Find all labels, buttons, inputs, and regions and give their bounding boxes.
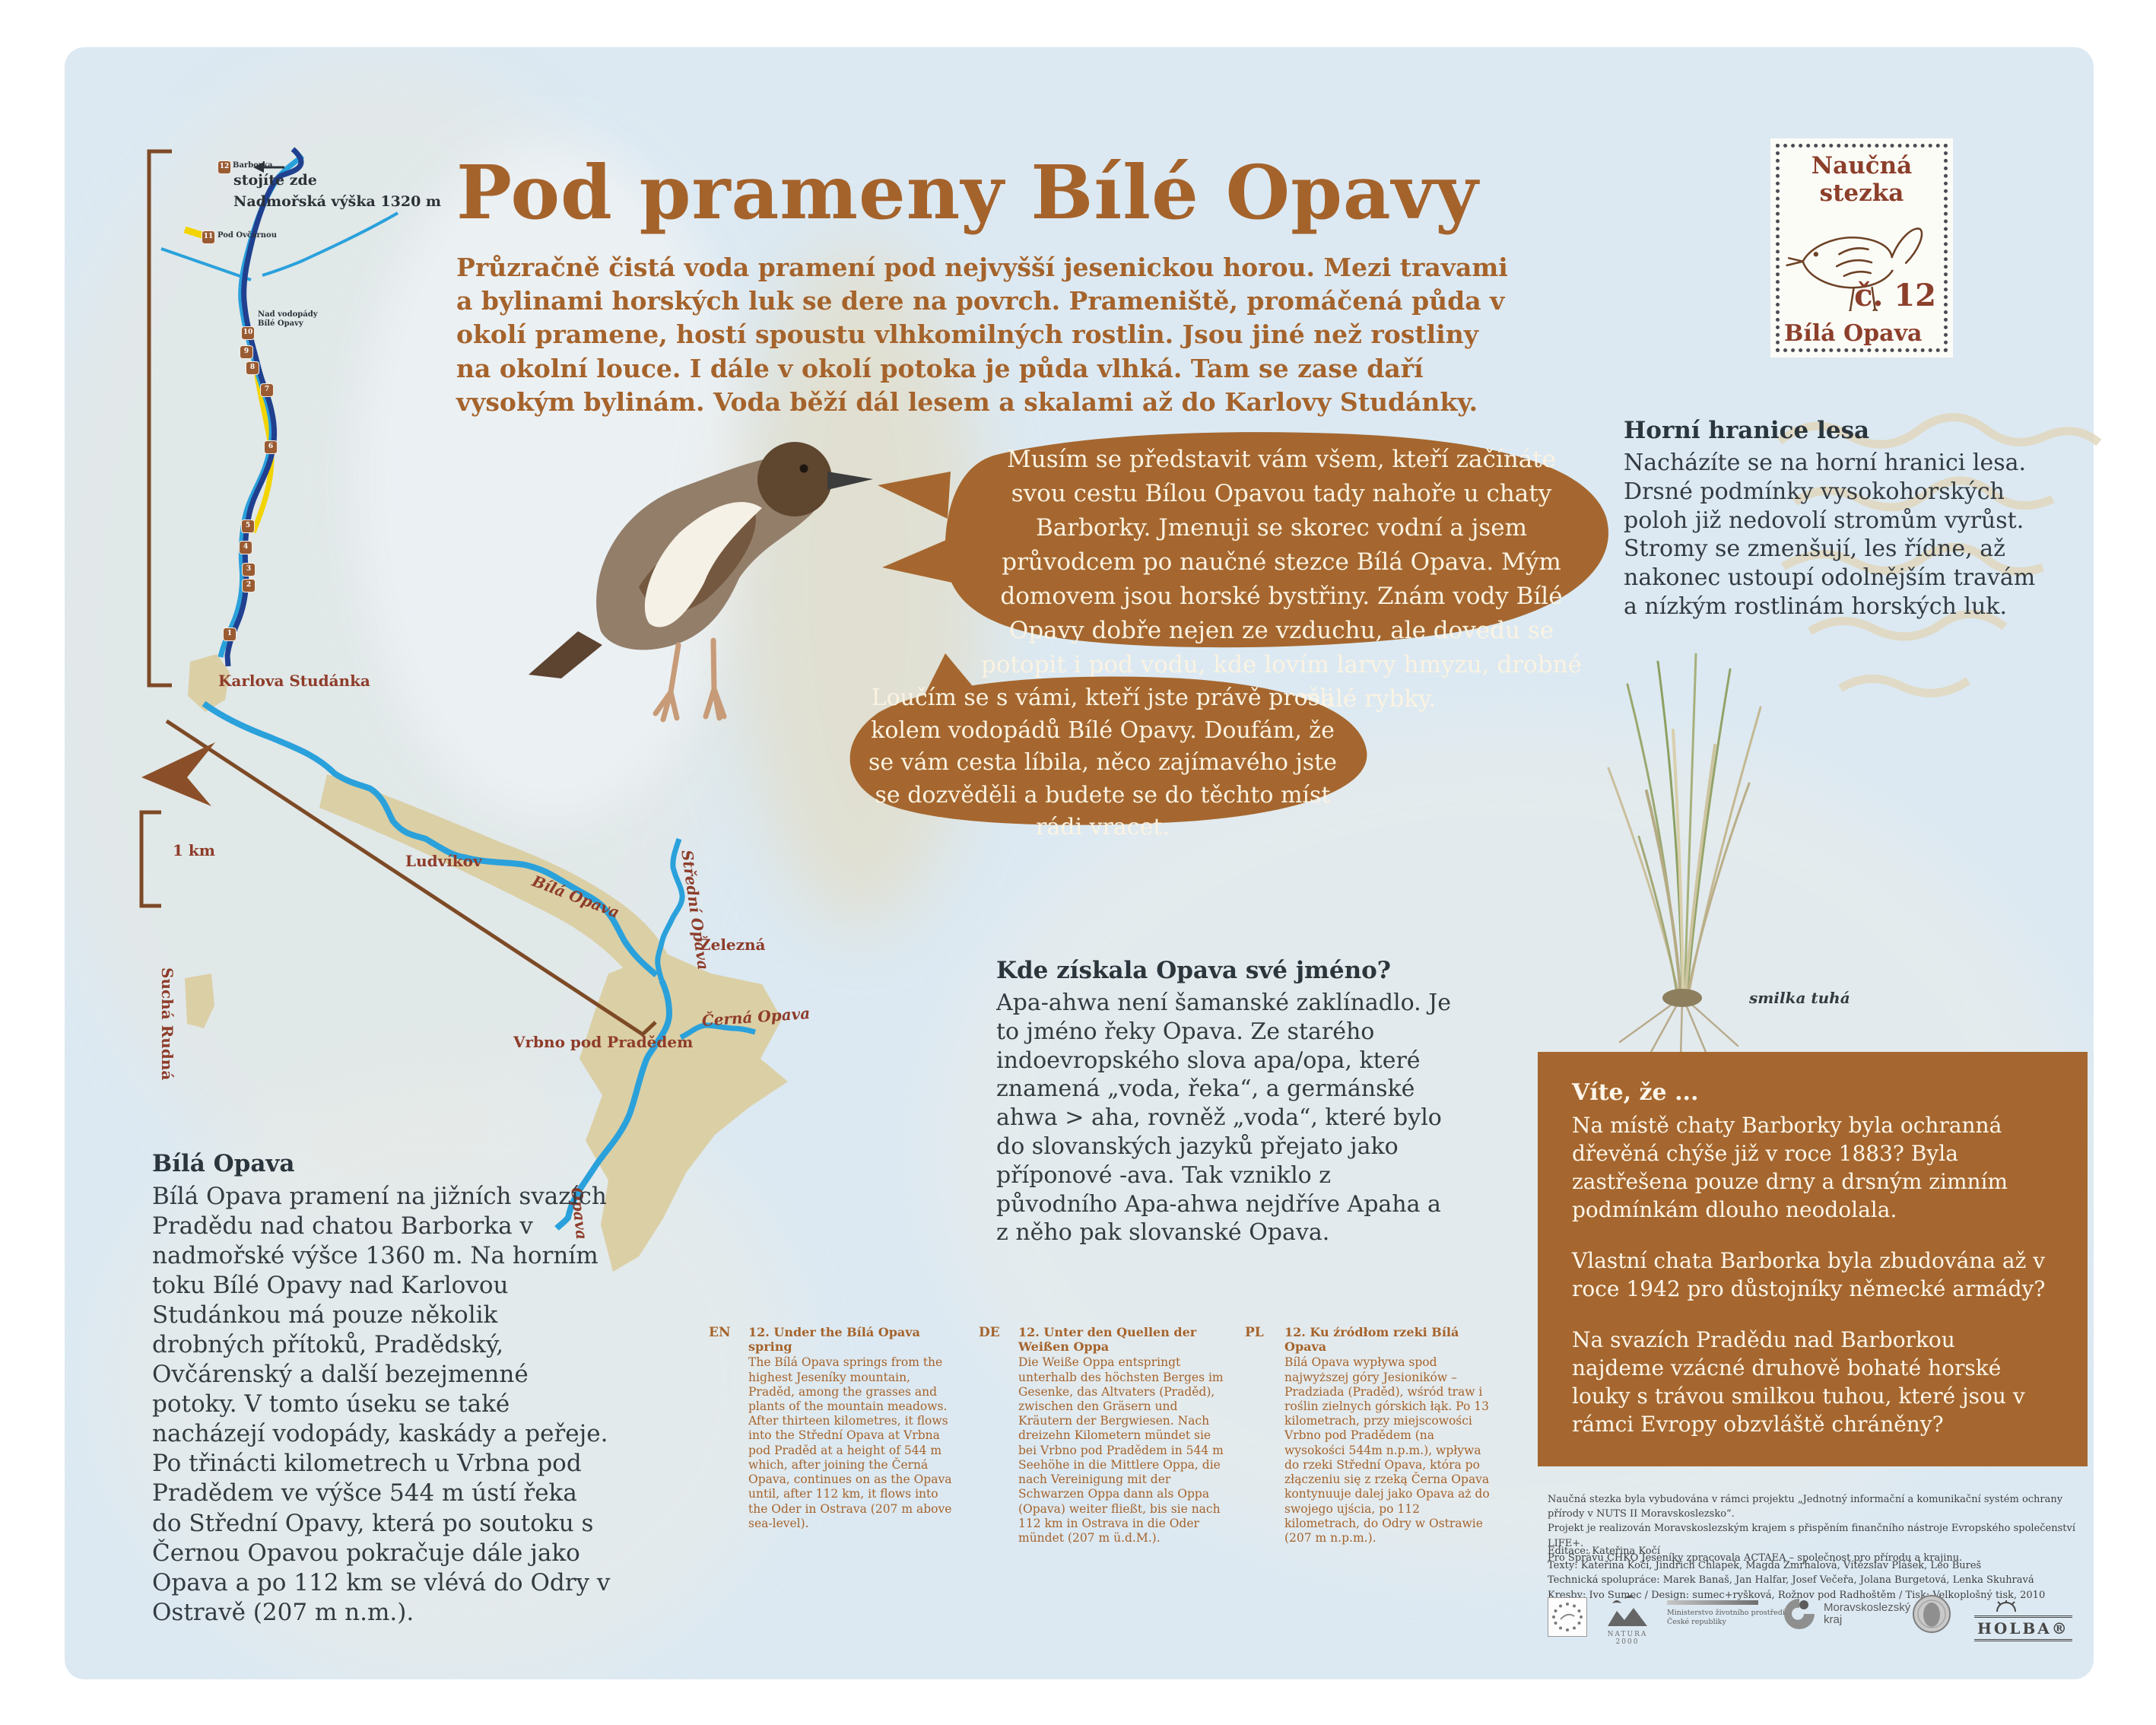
- translation-en-title: 12. Under the Bílá Opava spring: [748, 1325, 960, 1354]
- north-arrow: [141, 742, 215, 806]
- speech-bubble-intro: Musím se představit vám všem, kteří začí…: [875, 424, 1627, 656]
- natura-2000-icon: [1606, 1594, 1649, 1628]
- tributary-streams: [161, 213, 398, 280]
- speech-bubble-farewell-text: Loučím se s vámi, kteří jste právě prošl…: [867, 682, 1338, 844]
- station-10-label: Nad vodopády Bílé Opavy: [258, 310, 320, 328]
- did-you-know-box: Víte, že ... Na místě chaty Barborky byl…: [1538, 1052, 2088, 1466]
- credit-line: Technická spolupráce: Marek Banaš, Jan H…: [1548, 1573, 2088, 1587]
- credit-line: Editace: Kateřina Kočí: [1548, 1544, 2088, 1558]
- translation-pl: PL 12. Ku źródłom rzeki Bílá Opava Bílá …: [1245, 1325, 1496, 1546]
- section-name-origin-title: Kde získala Opava své jméno?: [996, 957, 1456, 984]
- page-title: Pod prameny Bílé Opavy: [456, 149, 1478, 236]
- translation-de-body: Die Weiße Oppa entspringt unterhalb des …: [1018, 1355, 1230, 1546]
- place-ludvikov: Ludvíkov: [405, 852, 482, 870]
- eu-life-stars-icon: [1548, 1598, 1586, 1636]
- station-11-label: Pod Ovčárnou: [218, 231, 277, 240]
- trail-marker-9: 9: [240, 345, 253, 359]
- place-vrbno: Vrbno pod Pradědem: [513, 1033, 693, 1051]
- project-line: Naučná stezka byla vybudována v rámci pr…: [1548, 1492, 2088, 1521]
- did-you-know-title: Víte, že ...: [1572, 1079, 2053, 1106]
- section-bila-opava-body: Bílá Opava pramení na jižních svazích Pr…: [152, 1182, 612, 1628]
- trail-marker-11: 11: [202, 230, 215, 244]
- station-12-label: Barborka: [233, 161, 273, 170]
- you-are-here-label: stojíte zde: [233, 172, 317, 189]
- region-name-line2: kraj: [1824, 1614, 1910, 1627]
- trail-marker-6: 6: [264, 440, 278, 454]
- section-forest-line-title: Horní hranice lesa: [1624, 417, 2053, 444]
- section-name-origin-body: Apa-ahwa není šamanské zaklínadlo. Je to…: [996, 989, 1456, 1247]
- trail-marker-12: 12: [218, 160, 231, 174]
- trail-marker-2: 2: [242, 579, 256, 592]
- logo-natura-2000: NATURA 2000: [1606, 1594, 1649, 1640]
- did-you-know-p3: Na svazích Pradědu nad Barborkou najdeme…: [1572, 1326, 2053, 1439]
- holba-wordmark: HOLBA®: [1974, 1615, 2072, 1641]
- credit-line: Texty: Kateřina Kočí, Jindřich Chlapek, …: [1548, 1558, 2088, 1573]
- ministry-name-line1: Ministerstvo životního prostředí: [1667, 1609, 1785, 1618]
- seal-icon: [1912, 1594, 1951, 1634]
- section-bila-opava-title: Bílá Opava: [152, 1150, 612, 1177]
- translation-en-body: The Bílá Opava springs from the highest …: [748, 1355, 960, 1531]
- trail-marker-1: 1: [223, 627, 237, 641]
- section-forest-line: Horní hranice lesa Nacházíte se na horní…: [1624, 417, 2053, 621]
- poster-page: Pod prameny Bílé Opavy Průzračně čistá v…: [0, 0, 2156, 1725]
- logo-ministry: Ministerstvo životního prostředí České r…: [1667, 1600, 1785, 1627]
- natura-2000-caption: NATURA 2000: [1606, 1631, 1649, 1646]
- logo-holba: HOLBA®: [1974, 1600, 2072, 1641]
- logo-seal: [1912, 1594, 1951, 1637]
- logo-eu-life: [1548, 1597, 1587, 1637]
- trail-marker-3: 3: [242, 563, 256, 577]
- translation-pl-body: Bílá Opava wypływa spod najwyższej góry …: [1284, 1355, 1496, 1546]
- trail-marker-8: 8: [246, 361, 259, 375]
- translation-de-title: 12. Unter den Quellen der Weißen Oppa: [1018, 1325, 1230, 1354]
- section-bila-opava: Bílá Opava Bílá Opava pramení na jižních…: [152, 1150, 612, 1628]
- section-forest-line-body: Nacházíte se na horní hranici lesa. Drsn…: [1624, 449, 2053, 621]
- stamp-trail-name: Bílá Opava: [1784, 320, 1922, 347]
- stamp-number: č. 12: [1854, 278, 1936, 313]
- trail-stamp: Naučná stezka č. 12 Bílá Opava: [1770, 138, 1953, 357]
- plant-label: smilka tuhá: [1749, 989, 1850, 1007]
- ministry-bar-icon: [1667, 1600, 1758, 1605]
- translation-pl-code: PL: [1245, 1325, 1264, 1340]
- translation-de: DE 12. Unter den Quellen der Weißen Oppa…: [979, 1325, 1230, 1546]
- holba-sun-icon: [1974, 1600, 2038, 1612]
- did-you-know-p1: Na místě chaty Barborky byla ochranná dř…: [1572, 1112, 2053, 1225]
- scale-label: 1 km: [173, 841, 215, 859]
- speech-bubble-farewell: Loučím se s vámi, kteří jste právě prošl…: [810, 650, 1388, 840]
- altitude-label: Nadmořská výška 1320 m: [233, 193, 441, 210]
- trail-marker-4: 4: [239, 541, 252, 554]
- translation-pl-title: 12. Ku źródłom rzeki Bílá Opava: [1284, 1325, 1496, 1354]
- did-you-know-p2: Vlastní chata Barborka byla zbudována až…: [1572, 1247, 2053, 1304]
- trail-marker-10: 10: [241, 326, 255, 340]
- trail-marker-5: 5: [241, 519, 255, 533]
- translation-en-code: EN: [709, 1325, 731, 1340]
- section-name-origin: Kde získala Opava své jméno? Apa-ahwa ne…: [996, 957, 1456, 1247]
- region-name-line1: Moravskoslezský: [1824, 1602, 1910, 1615]
- ministry-name-line2: České republiky: [1667, 1618, 1785, 1627]
- place-karlova-studanka: Karlova Studánka: [218, 672, 370, 690]
- intro-paragraph: Průzračně čistá voda pramení pod nejvyšš…: [456, 251, 1521, 419]
- logo-region: Moravskoslezský kraj: [1781, 1596, 1910, 1632]
- translation-de-code: DE: [979, 1325, 1000, 1340]
- place-sucha-rudna: Suchá Rudná: [158, 967, 176, 1080]
- region-emblem-icon: [1781, 1596, 1818, 1632]
- trail-marker-7: 7: [260, 383, 274, 397]
- translation-en: EN 12. Under the Bílá Opava spring The B…: [709, 1325, 960, 1531]
